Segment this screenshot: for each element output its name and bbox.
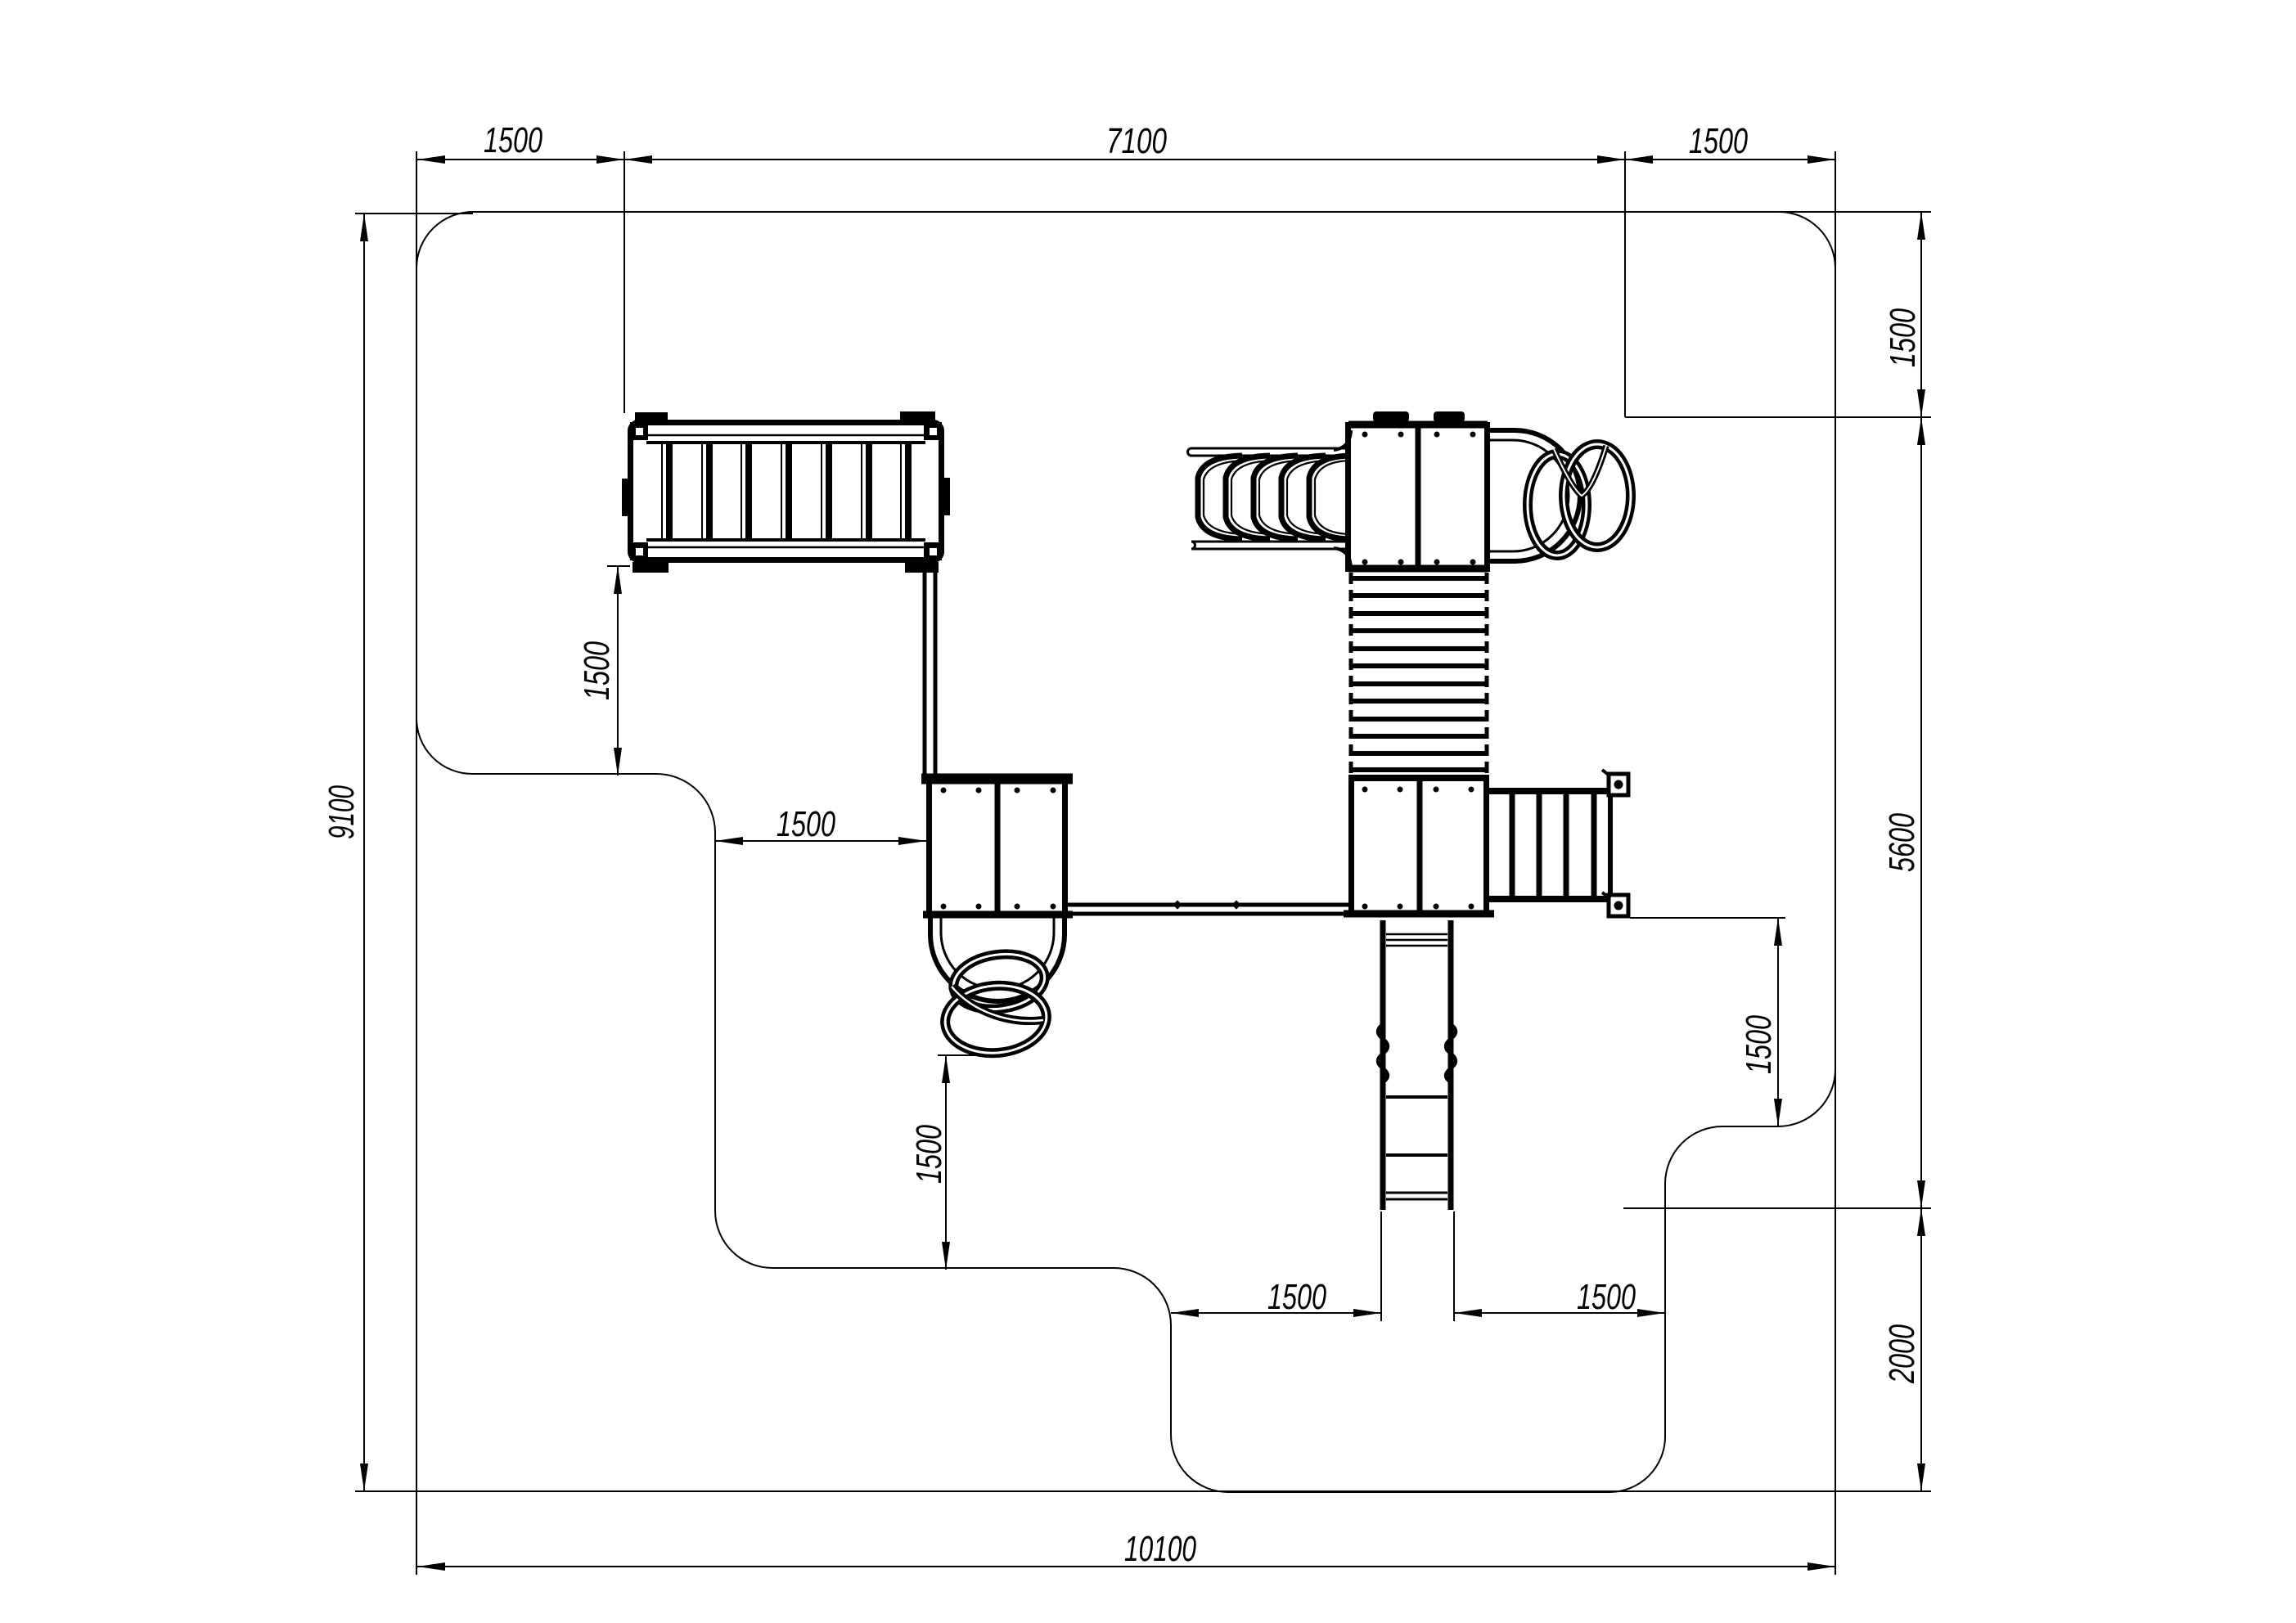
svg-text:9100: 9100 [322, 785, 362, 839]
svg-text:7100: 7100 [1106, 121, 1167, 161]
svg-text:1500: 1500 [1739, 1015, 1779, 1074]
svg-text:1500: 1500 [1267, 1277, 1326, 1317]
svg-text:10100: 10100 [1124, 1529, 1196, 1569]
svg-text:1500: 1500 [777, 804, 835, 844]
svg-text:1500: 1500 [484, 120, 542, 160]
svg-text:2000: 2000 [1882, 1324, 1922, 1384]
svg-text:1500: 1500 [1689, 121, 1748, 161]
svg-text:1500: 1500 [1577, 1277, 1636, 1317]
svg-text:1500: 1500 [577, 641, 617, 700]
svg-text:1500: 1500 [1883, 308, 1923, 367]
svg-text:1500: 1500 [909, 1125, 949, 1184]
svg-text:5600: 5600 [1882, 813, 1922, 872]
